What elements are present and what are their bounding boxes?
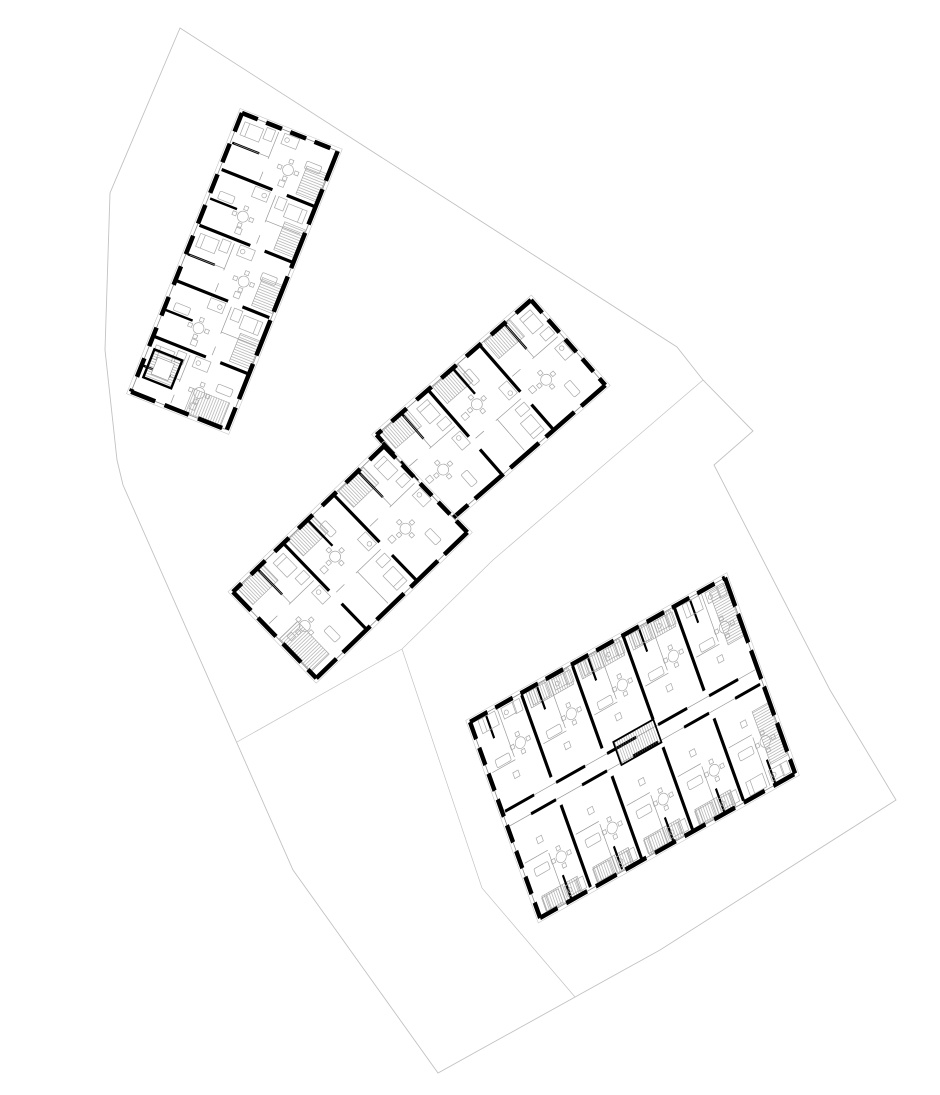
site-plan-svg — [0, 0, 940, 1095]
building-north-bar — [127, 108, 343, 434]
site-plan-page — [0, 0, 940, 1095]
building-south-slab — [466, 573, 800, 923]
buildings-layer — [127, 108, 800, 922]
